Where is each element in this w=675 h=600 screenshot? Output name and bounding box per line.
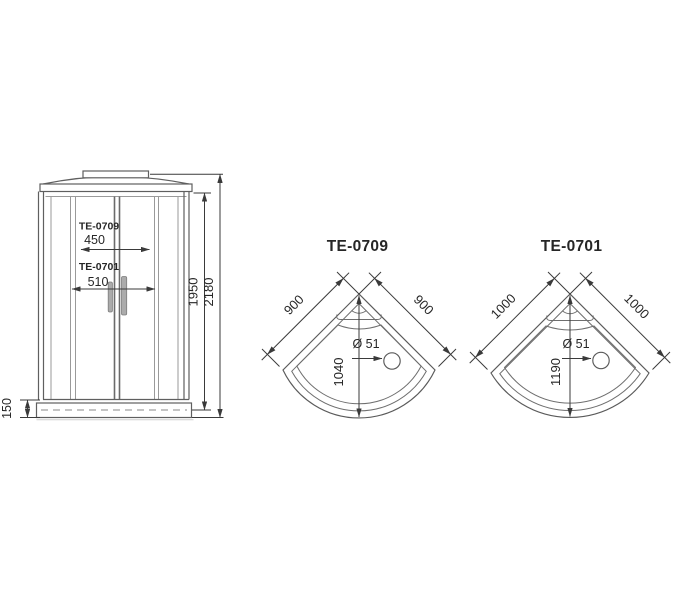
drain-diameter-label: Ø 51 bbox=[562, 337, 589, 351]
extension-line bbox=[570, 272, 592, 294]
drain-circle bbox=[593, 352, 609, 368]
dim-value-1040: 1040 bbox=[331, 358, 346, 387]
dim-value-150: 150 bbox=[0, 398, 14, 419]
drain-circle bbox=[384, 353, 400, 369]
extension-line bbox=[337, 272, 359, 294]
dim-value-1190: 1190 bbox=[548, 358, 563, 386]
dim-value-900-left: 900 bbox=[281, 292, 307, 318]
roof-band bbox=[40, 184, 192, 192]
dim-overshoot bbox=[554, 273, 560, 279]
technical-drawing-page: TE-0709 450 TE-0701 510 1950 2180 bbox=[0, 0, 675, 600]
dim-value-2180: 2180 bbox=[201, 278, 216, 307]
roof-vent-box bbox=[83, 171, 149, 178]
top-view-title-0701: TE-0701 bbox=[541, 238, 603, 255]
dim-value-900-right: 900 bbox=[411, 292, 437, 318]
extension-line bbox=[359, 272, 381, 294]
dim-value-450: 450 bbox=[84, 233, 105, 247]
door-handle-left bbox=[108, 282, 112, 312]
top-view-te-0709: TE-0709 Ø 51 1040 900 900 bbox=[262, 238, 457, 418]
dim-door-width-0701: TE-0701 510 bbox=[72, 261, 155, 289]
dim-overshoot bbox=[580, 273, 586, 279]
extension-line bbox=[548, 272, 570, 294]
dim-value-1000-left: 1000 bbox=[488, 291, 519, 322]
dim-overshoot bbox=[343, 273, 349, 279]
dim-overshoot bbox=[262, 354, 268, 360]
dim-tray-height: 150 bbox=[0, 398, 40, 419]
shower-cabin-dimension-diagram: TE-0709 450 TE-0701 510 1950 2180 bbox=[0, 0, 675, 600]
door-handle-right bbox=[122, 277, 127, 316]
dim-overshoot bbox=[470, 357, 476, 363]
top-view-title-0709: TE-0709 bbox=[327, 238, 389, 255]
dim-overshoot bbox=[665, 357, 671, 363]
dim-overshoot bbox=[369, 273, 375, 279]
dim-value-1000-right: 1000 bbox=[621, 291, 652, 322]
cabin-front-view: TE-0709 450 TE-0701 510 1950 2180 bbox=[0, 171, 224, 420]
dim-value-510: 510 bbox=[88, 275, 109, 289]
dim-overshoot bbox=[451, 354, 457, 360]
model-label-te0709: TE-0709 bbox=[79, 221, 119, 233]
model-label-te0701: TE-0701 bbox=[79, 261, 119, 273]
top-view-te-0701: TE-0701 Ø 51 1190 1000 10 bbox=[470, 238, 671, 417]
dim-value-1950: 1950 bbox=[186, 278, 201, 307]
drain-diameter-label: Ø 51 bbox=[352, 337, 379, 351]
